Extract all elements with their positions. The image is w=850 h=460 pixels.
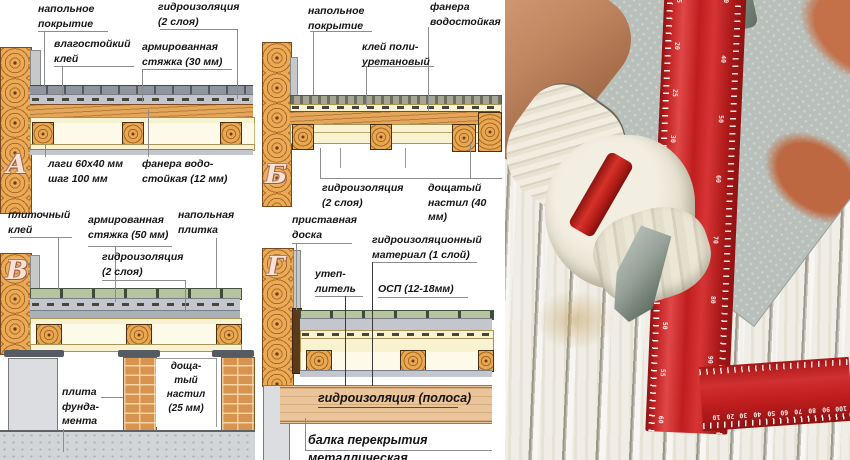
leader-line (148, 110, 149, 157)
pier-cap (4, 350, 64, 357)
label-waterproofing: гидроизоляция (2 слоя) (102, 250, 183, 279)
leader-line (372, 262, 373, 386)
label-waterproof-material: гидроизоляционный материал (1 слой) (372, 233, 482, 262)
joist-block (452, 124, 476, 152)
leader-line (296, 243, 297, 310)
label-plywood: фанера водостойкая (430, 0, 501, 29)
joist-edge-line (405, 148, 406, 168)
photo-panel: 15202530354045505560 30405060708090100 1… (505, 0, 850, 460)
ground-slab (0, 430, 255, 460)
leader-line (320, 148, 321, 178)
leader-line (185, 280, 186, 312)
edge-strip (293, 250, 301, 310)
joist-block (400, 350, 426, 372)
diagram-letter-b: Б (265, 160, 287, 190)
joist-block (292, 124, 314, 150)
leader-line (142, 69, 143, 102)
joist-block (306, 350, 332, 372)
leader-line (62, 66, 63, 96)
joist-block (478, 112, 502, 152)
diagram-g: приставная доска гидроизоляционный матер… (255, 200, 505, 460)
leader-line (237, 29, 238, 99)
diagram-letter-v: В (6, 256, 28, 286)
diagram-v: плиточный клей армированная стяжка (50 м… (0, 200, 255, 460)
joist-block (122, 122, 144, 146)
label-waterproof-strip: гидроизоляция (полоса) (318, 390, 471, 408)
layer-base (30, 149, 253, 155)
label-attached-board: приставная доска (292, 213, 357, 242)
joist-block (36, 324, 62, 346)
leader-line (58, 237, 59, 290)
label-joists: лаги 60x40 мм шаг 100 мм (48, 157, 123, 186)
label-screed: армированная стяжка (50 мм) (88, 213, 168, 242)
wood-stain (535, 290, 615, 350)
foundation-block (8, 358, 58, 432)
diagram-letter-a: А (6, 150, 27, 180)
label-tile-glue: плиточный клей (8, 208, 70, 237)
diagram-letter-g: Г (267, 252, 285, 282)
leader-line (216, 238, 217, 288)
leader-line (470, 142, 471, 178)
label-glue: влагостойкий клей (54, 37, 130, 66)
leader-line (366, 66, 367, 107)
page: напольное покрытие гидроизоляция (2 слоя… (0, 0, 850, 460)
label-foundation-slab: плита фунда- мента (60, 385, 101, 429)
label-glue: клей поли- уретановый (362, 40, 430, 69)
joist-block (478, 350, 494, 372)
layer-base (300, 370, 492, 377)
joist-block (220, 122, 242, 146)
edge-strip (290, 57, 298, 99)
layer-glue-dashes (292, 106, 498, 109)
leader-line (432, 178, 502, 179)
leader-line (313, 31, 314, 95)
ruler-scale-numbers: 102030405060708090100 (712, 404, 847, 421)
layer-waterproofing-dashes (302, 333, 490, 336)
leader-line (45, 144, 46, 157)
label-floor-covering: напольное покрытие (308, 4, 364, 33)
leader-line (44, 31, 45, 88)
label-waterproofing: гидроизоляция (2 слоя) (158, 0, 239, 29)
brick-pier (221, 357, 255, 434)
label-osb: ОСП (12-18мм) (378, 282, 454, 297)
label-insulation: утеп- литель (315, 267, 356, 296)
leader-line (345, 296, 346, 386)
leader-line (88, 246, 172, 247)
label-screed: армированная стяжка (30 мм) (142, 40, 222, 69)
joist-block (126, 324, 152, 346)
label-beam: балка перекрытия металлическая (308, 432, 505, 460)
pier-cap (212, 350, 254, 357)
leader-line (305, 418, 306, 450)
joist-edge-line (340, 148, 341, 168)
layer-waterproofing-dashes (32, 303, 238, 306)
leader-line (320, 178, 450, 179)
label-floor-tile: напольная плитка (178, 208, 234, 237)
label-floor-covering: напольное покрытие (38, 2, 94, 31)
joist-block (370, 124, 392, 150)
framing-square-horizontal-arm: 102030405060708090100 (699, 357, 850, 431)
joist-block (216, 324, 242, 346)
leader-line (102, 280, 186, 281)
leader-line (292, 243, 352, 244)
pier-cap (118, 350, 160, 357)
diagram-b: напольное покрытие фанера водостойкая кл… (255, 0, 505, 210)
diagram-a: напольное покрытие гидроизоляция (2 слоя… (0, 0, 255, 210)
label-plank-deck: доща- тый настил (25 мм) (156, 358, 217, 427)
joist-block (32, 122, 54, 146)
layer-diagrams-panel: напольное покрытие гидроизоляция (2 слоя… (0, 0, 505, 460)
leader-line (378, 297, 468, 298)
label-plywood: фанера водо- стойкая (12 мм) (142, 157, 227, 186)
brick-pier (123, 357, 157, 434)
ruler-scale-numbers: 30405060708090100 (702, 0, 732, 426)
log-wall (0, 47, 32, 214)
